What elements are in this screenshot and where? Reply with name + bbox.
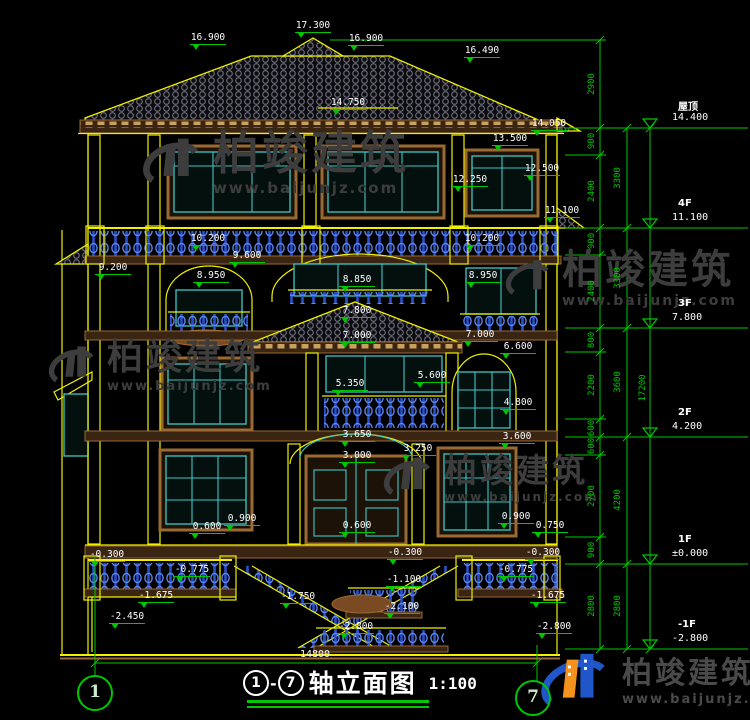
elevation-annotation: 0.600: [339, 521, 375, 533]
elevation-value: 3.650: [343, 429, 372, 440]
elevation-marker-icon: [500, 353, 536, 354]
elevation-marker-icon: [280, 603, 316, 604]
elevation-value: 0.600: [343, 520, 372, 531]
watermark-brand: 柏竣建筑: [107, 337, 263, 378]
elevation-marker-icon: [462, 341, 498, 342]
elevation-annotation: 16.900: [348, 34, 384, 46]
watermark-center: 柏竣建筑 www.baijunjz.com: [383, 450, 599, 508]
watermark-brand: 柏竣建筑: [444, 451, 588, 490]
dimension-value: 900: [587, 133, 597, 149]
elevation-value: 4.800: [504, 397, 533, 408]
brand-logo-icon: [383, 450, 437, 508]
title-underline: [247, 706, 429, 708]
elevation-value: 7.000: [343, 330, 372, 341]
floor-level-name: 屋顶: [678, 98, 698, 113]
dimension-value: 600: [587, 420, 597, 436]
elevation-marker-icon: [498, 523, 534, 524]
dimension-value: 900: [587, 542, 597, 558]
elevation-marker-icon: [339, 317, 375, 318]
elevation-marker-icon: [193, 282, 229, 283]
elevation-value: -0.300: [526, 547, 560, 558]
elevation-annotation: 8.950: [193, 271, 229, 283]
elevation-marker-icon: [339, 441, 375, 442]
floor-level-elevation: 11.100: [672, 212, 708, 223]
elevation-value: 0.900: [502, 511, 531, 522]
elevation-annotation: 10.200: [190, 234, 226, 246]
elevation-annotation: -0.300: [525, 548, 561, 560]
elevation-annotation: 16.900: [190, 33, 226, 45]
elevation-annotation: 0.900: [498, 512, 534, 524]
elevation-marker-icon: [414, 382, 450, 383]
elevation-value: -1.750: [281, 591, 315, 602]
elevation-value: 6.600: [504, 341, 533, 352]
watermark-brand: 柏竣建筑: [622, 656, 750, 691]
elevation-annotation: 0.900: [224, 514, 260, 526]
elevation-marker-icon: [295, 32, 331, 33]
watermark-url: www.baijunjz.com: [444, 490, 599, 504]
elevation-marker-icon: [224, 525, 260, 526]
elevation-marker-icon: [525, 559, 561, 560]
elevation-value: 16.900: [349, 33, 383, 44]
elevation-marker-icon: [492, 145, 528, 146]
dimension-value: 2700: [587, 485, 597, 507]
title-axis-right-bubble: 7: [278, 670, 304, 696]
elevation-annotation: 0.600: [189, 522, 225, 534]
dimension-value: 17200: [638, 374, 648, 401]
elevation-annotation: -2.450: [109, 612, 145, 624]
watermark-top: 柏竣建筑 www.baijunjz.com: [142, 130, 409, 197]
elevation-annotation: 3.000: [339, 451, 375, 463]
elevation-marker-icon: [338, 633, 374, 634]
elevation-annotation: 3.650: [339, 430, 375, 442]
elevation-value: 14.750: [331, 97, 365, 108]
elevation-marker-icon: [89, 561, 125, 562]
elevation-value: 3.600: [503, 431, 532, 442]
title-scale: 1:100: [429, 674, 477, 693]
cad-canvas: 柏竣建筑 www.baijunjz.com 柏竣建筑 www.baijunjz.…: [0, 0, 750, 720]
floor-level-elevation: ±0.000: [672, 548, 708, 559]
elevation-annotation: 9.600: [229, 251, 265, 263]
elevation-value: -1.675: [531, 590, 565, 601]
elevation-marker-icon: [544, 217, 580, 218]
elevation-annotation: -0.775: [498, 565, 534, 577]
elevation-annotation: 12.500: [524, 164, 560, 176]
floor-level-elevation: -2.800: [672, 633, 708, 644]
watermark-url: www.baijunjz.com: [107, 379, 272, 394]
elevation-value: 8.950: [469, 270, 498, 281]
elevation-annotation: 10.200: [464, 234, 500, 246]
elevation-marker-icon: [531, 130, 567, 131]
title-axis-left-bubble: 1: [243, 670, 269, 696]
elevation-marker-icon: [532, 532, 568, 533]
elevation-value: 10.200: [191, 233, 225, 244]
dimension-value: 4200: [613, 489, 623, 511]
elevation-annotation: 5.350: [332, 379, 368, 391]
elevation-value: 0.900: [228, 513, 257, 524]
elevation-marker-icon: [95, 274, 131, 275]
elevation-annotation: 14.750: [330, 98, 366, 110]
elevation-annotation: 17.300: [295, 21, 331, 33]
dimension-value: 2400: [587, 280, 597, 302]
elevation-marker-icon: [387, 559, 423, 560]
elevation-value: -0.300: [388, 547, 422, 558]
elevation-marker-icon: [190, 44, 226, 45]
overall-width-dimension: 14800: [300, 649, 330, 660]
elevation-value: 3.000: [343, 450, 372, 461]
elevation-marker-icon: [339, 462, 375, 463]
elevation-annotation: -1.675: [138, 591, 174, 603]
elevation-annotation: 0.750: [532, 521, 568, 533]
elevation-marker-icon: [500, 409, 536, 410]
elevation-marker-icon: [339, 532, 375, 533]
floor-level-elevation: 7.800: [672, 312, 702, 323]
elevation-marker-icon: [190, 245, 226, 246]
title-underline: [247, 700, 429, 703]
title-text: 轴立面图: [309, 669, 417, 698]
elevation-annotation: 7.000: [462, 330, 498, 342]
watermark-left: 柏竣建筑 www.baijunjz.com: [48, 340, 272, 394]
elevation-value: 7.800: [343, 305, 372, 316]
elevation-marker-icon: [330, 109, 366, 110]
elevation-value: -0.300: [90, 549, 124, 560]
floor-level-elevation: 4.200: [672, 421, 702, 432]
elevation-marker-icon: [464, 245, 500, 246]
elevation-annotation: -0.300: [89, 550, 125, 562]
elevation-marker-icon: [348, 45, 384, 46]
elevation-marker-icon: [189, 533, 225, 534]
elevation-marker-icon: [339, 342, 375, 343]
elevation-marker-icon: [109, 623, 145, 624]
elevation-value: 0.600: [193, 521, 222, 532]
brand-logo-icon: [505, 252, 555, 308]
elevation-marker-icon: [229, 262, 265, 263]
dimension-value: 2800: [613, 595, 623, 617]
elevation-annotation: 6.600: [500, 342, 536, 354]
dimension-value: 3300: [613, 167, 623, 189]
elevation-value: 16.490: [465, 45, 499, 56]
elevation-value: 8.950: [197, 270, 226, 281]
elevation-annotation: -2.800: [338, 622, 374, 634]
elevation-marker-icon: [499, 443, 535, 444]
elevation-value: 9.200: [99, 262, 128, 273]
axis-grid-number: 7: [527, 687, 539, 707]
elevation-annotation: -1.675: [530, 591, 566, 603]
elevation-value: -0.775: [175, 564, 209, 575]
elevation-annotation: -1.100: [386, 575, 422, 587]
elevation-value: 14.050: [532, 118, 566, 129]
elevation-value: 9.600: [233, 250, 262, 261]
elevation-marker-icon: [384, 613, 420, 614]
elevation-annotation: 12.250: [452, 175, 488, 187]
elevation-annotation: 4.800: [500, 398, 536, 410]
watermark-brand: 柏竣建筑: [213, 126, 409, 180]
floor-level-name: 2F: [678, 407, 692, 418]
elevation-value: 5.600: [418, 370, 447, 381]
elevation-value: 12.500: [525, 163, 559, 174]
elevation-annotation: 11.100: [544, 206, 580, 218]
watermark-url: www.baijunjz.com: [213, 179, 409, 197]
elevation-marker-icon: [138, 602, 174, 603]
elevation-value: 11.100: [545, 205, 579, 216]
axis-grid-number: 1: [89, 682, 101, 702]
elevation-value: -1.675: [139, 590, 173, 601]
elevation-value: 3.250: [404, 443, 433, 454]
drawing-title: 1-7轴立面图1:100: [243, 670, 477, 696]
elevation-value: -2.450: [110, 611, 144, 622]
floor-level-name: 4F: [678, 198, 692, 209]
elevation-marker-icon: [452, 186, 488, 187]
elevation-annotation: 8.850: [339, 275, 375, 287]
dimension-value: 3600: [613, 371, 623, 393]
elevation-value: -0.775: [499, 564, 533, 575]
elevation-value: -2.100: [385, 601, 419, 612]
elevation-marker-icon: [464, 57, 500, 58]
elevation-value: 16.900: [191, 32, 225, 43]
elevation-value: 7.000: [466, 329, 495, 340]
elevation-value: 17.300: [296, 20, 330, 31]
elevation-value: -2.800: [537, 621, 571, 632]
elevation-annotation: -2.100: [384, 602, 420, 614]
elevation-annotation: -2.800: [536, 622, 572, 634]
elevation-annotation: -0.775: [174, 565, 210, 577]
elevation-annotation: 7.800: [339, 306, 375, 318]
elevation-marker-icon: [174, 576, 210, 577]
title-dash: -: [270, 674, 277, 693]
elevation-marker-icon: [530, 602, 566, 603]
floor-level-name: 3F: [678, 298, 692, 309]
elevation-annotation: -1.750: [280, 592, 316, 604]
elevation-annotation: 8.950: [465, 271, 501, 283]
floor-level-elevation: 14.400: [672, 112, 708, 123]
dimension-value: 2200: [587, 374, 597, 396]
elevation-annotation: 7.000: [339, 331, 375, 343]
elevation-annotation: 3.600: [499, 432, 535, 444]
elevation-value: 0.750: [536, 520, 565, 531]
elevation-annotation: -0.300: [387, 548, 423, 560]
brand-logo-color-icon: [537, 648, 615, 718]
elevation-marker-icon: [524, 175, 560, 176]
axis-grid-bubble: 7: [515, 680, 551, 716]
watermark-url: www.baijunjz.com: [622, 692, 750, 707]
elevation-value: 12.250: [453, 174, 487, 185]
dimension-value: 2900: [587, 73, 597, 95]
brand-logo-icon: [48, 341, 100, 393]
elevation-annotation: 9.200: [95, 263, 131, 275]
elevation-marker-icon: [498, 576, 534, 577]
elevation-annotation: 3.250: [400, 444, 436, 456]
brand-logo-icon: [142, 132, 206, 196]
elevation-marker-icon: [386, 586, 422, 587]
axis-grid-bubble: 1: [77, 675, 113, 711]
elevation-value: 8.850: [343, 274, 372, 285]
dimension-value: 600: [587, 438, 597, 454]
elevation-marker-icon: [400, 455, 436, 456]
elevation-marker-icon: [536, 633, 572, 634]
elevation-value: 5.350: [336, 378, 365, 389]
elevation-value: -2.800: [339, 621, 373, 632]
elevation-annotation: 5.600: [414, 371, 450, 383]
elevation-marker-icon: [339, 286, 375, 287]
elevation-annotation: 13.500: [492, 134, 528, 146]
dimension-value: 3300: [613, 267, 623, 289]
elevation-annotation: 16.490: [464, 46, 500, 58]
dimension-value: 2800: [587, 595, 597, 617]
elevation-annotation: 14.050: [531, 119, 567, 131]
elevation-marker-icon: [332, 390, 368, 391]
floor-level-name: -1F: [678, 619, 696, 630]
elevation-marker-icon: [465, 282, 501, 283]
floor-level-name: 1F: [678, 534, 692, 545]
dimension-value: 900: [587, 233, 597, 249]
dimension-value: 800: [587, 332, 597, 348]
elevation-value: 13.500: [493, 133, 527, 144]
dimension-value: 2400: [587, 180, 597, 202]
watermark-corner-logo: 柏竣建筑 www.baijunjz.com: [537, 648, 750, 718]
elevation-value: 10.200: [465, 233, 499, 244]
elevation-value: -1.100: [387, 574, 421, 585]
